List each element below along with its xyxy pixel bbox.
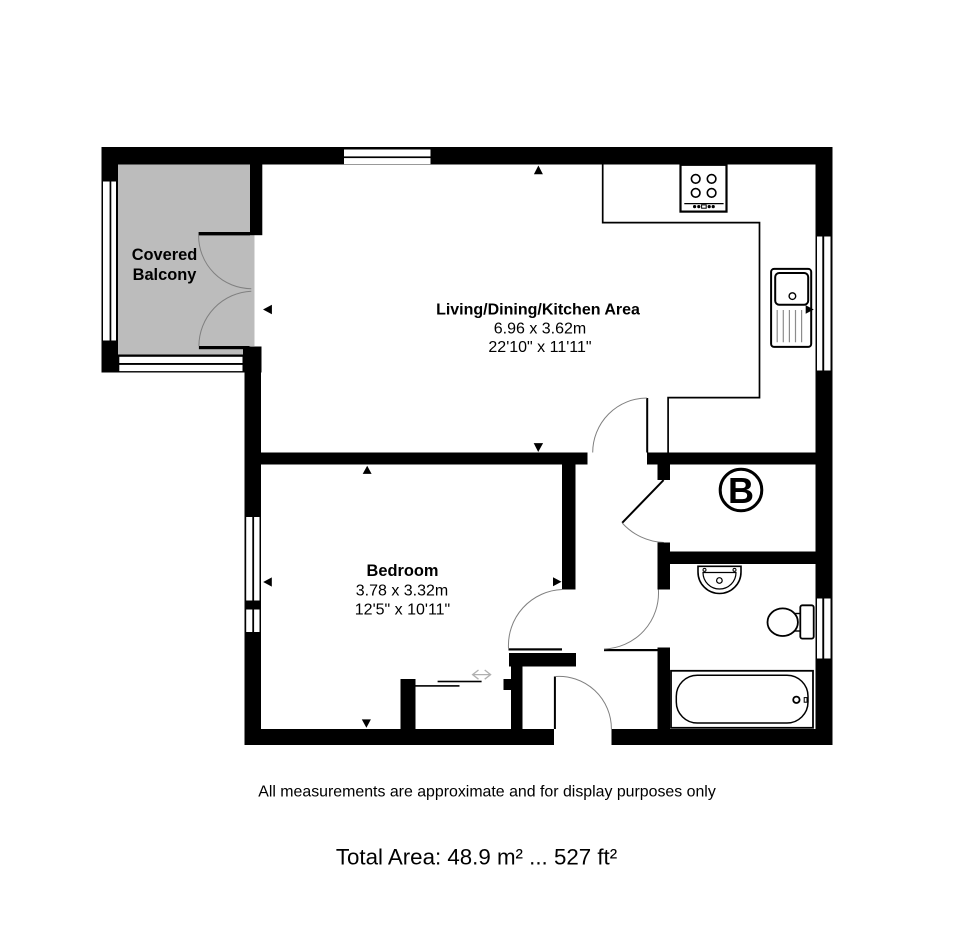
svg-text:B: B <box>728 470 754 511</box>
svg-text:All measurements are approxima: All measurements are approximate and for… <box>258 784 716 801</box>
svg-text:6.96 x 3.62m: 6.96 x 3.62m <box>494 321 587 338</box>
svg-text:12'5" x 10'11": 12'5" x 10'11" <box>355 602 450 619</box>
svg-text:Balcony: Balcony <box>133 266 198 284</box>
svg-text:Covered: Covered <box>132 246 198 264</box>
svg-text:22'10" x 11'11": 22'10" x 11'11" <box>488 339 591 356</box>
svg-text:Bedroom: Bedroom <box>367 562 439 580</box>
svg-text:3.78 x 3.32m: 3.78 x 3.32m <box>356 583 449 600</box>
svg-text:Living/Dining/Kitchen Area: Living/Dining/Kitchen Area <box>436 302 640 319</box>
svg-text:Total Area: 48.9 m² ... 527 ft: Total Area: 48.9 m² ... 527 ft² <box>336 845 617 870</box>
